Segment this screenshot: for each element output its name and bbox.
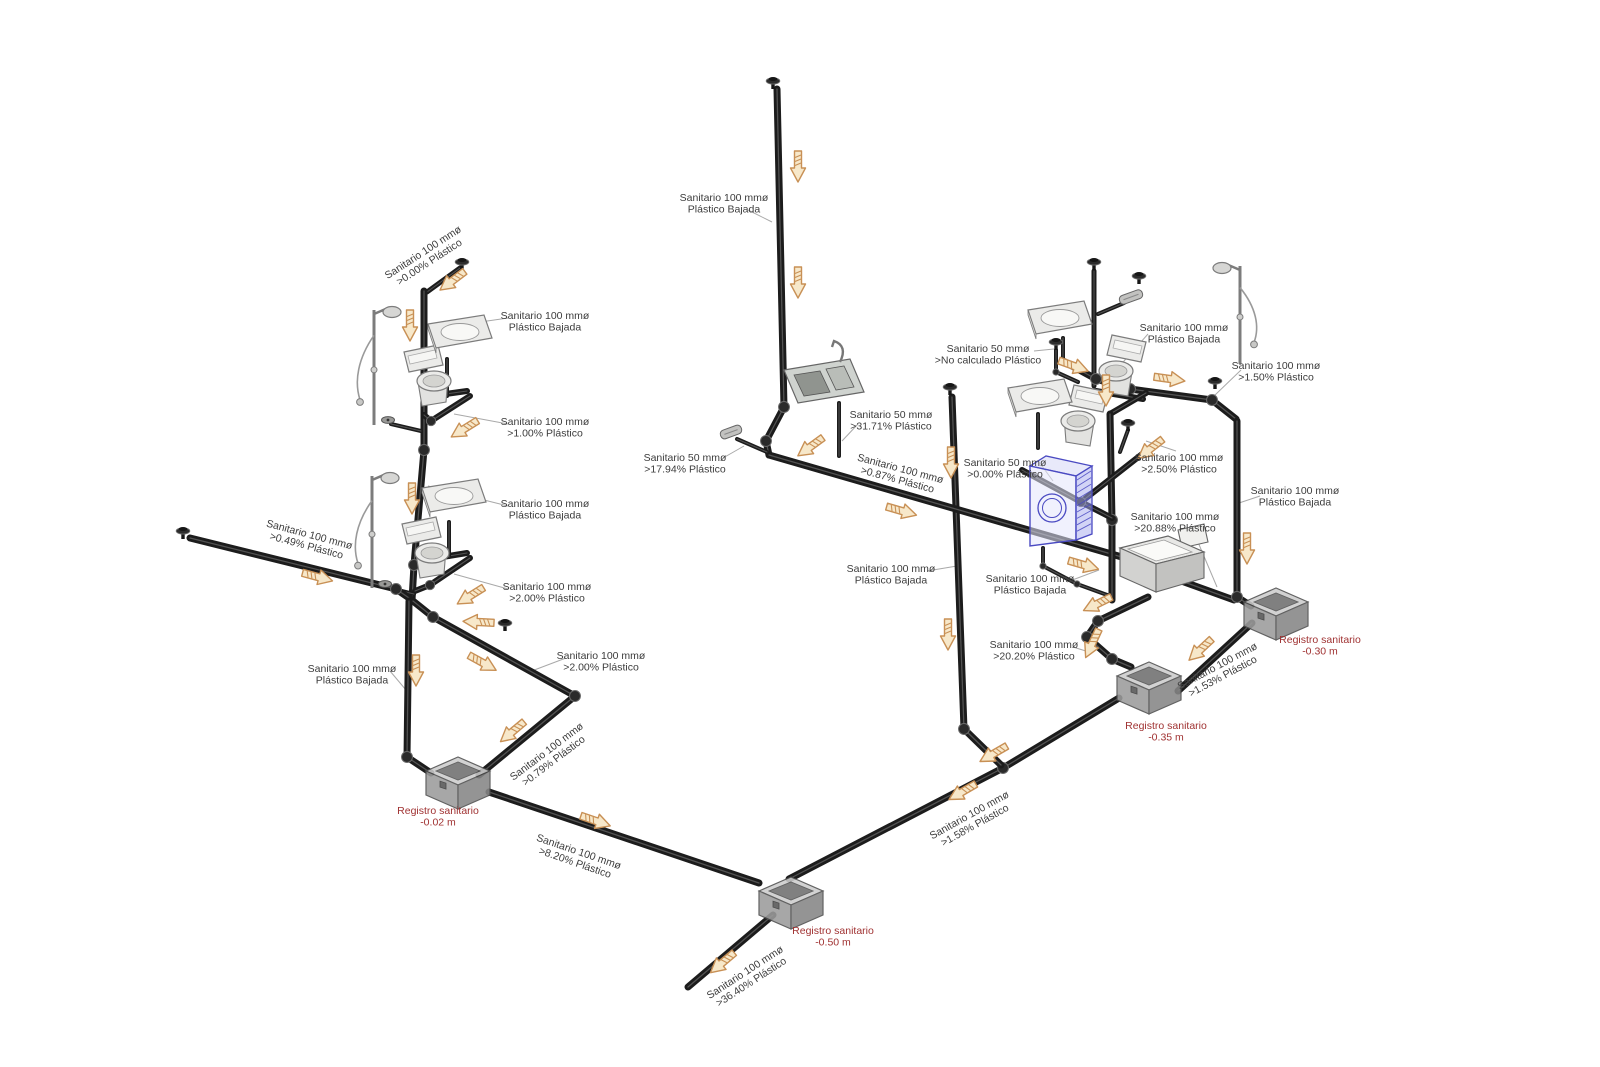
pipe-fitting (761, 436, 772, 447)
pipe-main-run-c (789, 698, 1119, 879)
pipe-showerr-stub (1098, 303, 1124, 314)
shower-handset (355, 562, 362, 569)
pipe-label-slope-17-94: Sanitario 50 mmø>17.94% Plástico (644, 452, 727, 476)
vent-cap-top (458, 258, 467, 262)
registro-050-label: Registro sanitario-0.50 m (792, 925, 874, 949)
small-floor-drain (382, 417, 395, 424)
vent-cap (1121, 419, 1135, 431)
drain-center (387, 419, 390, 422)
kitchen-sink-fixture (784, 341, 864, 403)
flow-arrow-icon (453, 581, 487, 610)
vent-cap (1132, 272, 1146, 284)
sink-bowl (435, 488, 473, 505)
pipe-label-bajada-mid: Sanitario 100 mmøPlástico Bajada (847, 563, 936, 587)
pipe-fitting (402, 752, 413, 763)
sink-bowl (1041, 310, 1079, 327)
leader-lines-layer (390, 210, 1260, 690)
flow-arrow-icon (791, 267, 806, 298)
pipe-label-bajada-bathr: Sanitario 100 mmøPlástico Bajada (1140, 322, 1229, 346)
toilet-fixture (404, 345, 451, 406)
pipe-highlight (1120, 430, 1128, 452)
registro-030-label: Registro sanitario-0.30 m (1279, 634, 1361, 658)
flow-arrow-icon (403, 310, 418, 341)
flow-arrow-body (791, 151, 806, 182)
pipe-label-slope-2-00-b: Sanitario 100 mmø>2.00% Plástico (557, 650, 646, 674)
shower-fixture (1213, 263, 1257, 365)
flow-arrow-body (793, 432, 827, 462)
flow-arrow-body (885, 499, 919, 522)
floor-drain-plate (719, 424, 743, 440)
pipe-fitting (959, 724, 970, 735)
vent-cap-top (1090, 258, 1099, 262)
shower-fixture (357, 307, 401, 426)
pipe-label-bajada-right: Sanitario 100 mmøPlástico Bajada (1251, 485, 1340, 509)
pipe-highlight (489, 792, 759, 883)
shower-handset (1251, 341, 1258, 348)
vent-cap-top (1124, 419, 1133, 423)
pipe-highlight (1098, 303, 1124, 314)
pipe-label-slope-8-20: Sanitario 100 mmø>8.20% Plástico (531, 832, 623, 883)
flow-arrow-icon (447, 414, 481, 443)
sink-bowl (1021, 388, 1059, 405)
registro-030-box (1244, 588, 1308, 640)
pipe-label-slope-1-00: Sanitario 100 mmø>1.00% Plástico (501, 416, 590, 440)
flow-arrow-body (463, 614, 495, 631)
pipe-vent-2-50-stub (1120, 430, 1128, 452)
pipe-label-no-calculado: Sanitario 50 mmø>No calculado Plástico (935, 343, 1042, 367)
plumbing-diagram-canvas: Sanitario 100 mmøPlástico BajadaSanitari… (0, 0, 1600, 1067)
sanitary-isometric-diagram: Sanitario 100 mmøPlástico BajadaSanitari… (0, 0, 1600, 1067)
flow-arrow-icon (791, 151, 806, 182)
pipe-fitting (779, 402, 790, 413)
pipe-label-bajada-left: Sanitario 100 mmøPlástico Bajada (308, 663, 397, 687)
flow-arrow-icon (793, 432, 827, 462)
flow-arrow-icon (1240, 533, 1255, 564)
shower-valve (371, 367, 377, 373)
flow-arrow-body (1240, 533, 1255, 564)
flow-arrow-icon (496, 716, 529, 747)
pipe-fitting (1093, 616, 1104, 627)
flow-arrow-body (453, 581, 487, 610)
pipe-fitting (419, 445, 430, 456)
pipe-label-slope-20-20: Sanitario 100 mmø>20.20% Plástico (990, 639, 1079, 663)
vent-cap (1208, 377, 1222, 389)
flow-arrow-icon (885, 499, 919, 522)
vent-cap-top (501, 619, 510, 623)
pipes-layer (190, 89, 1252, 987)
flow-arrow-icon (941, 619, 956, 650)
vent-cap (1049, 338, 1063, 350)
registro-035-box (1117, 662, 1181, 714)
vent-cap-top (1135, 272, 1144, 276)
flow-arrow-body (447, 414, 481, 443)
pipe-shower1-stub (391, 424, 421, 431)
vent-cap-top (769, 77, 778, 81)
pipe-bajada-1112 (1107, 414, 1118, 600)
pipe-label-slope-20-88: Sanitario 100 mmø>20.88% Plástico (1131, 511, 1220, 535)
pipe-fitting (1207, 395, 1218, 406)
washer-side (1076, 466, 1092, 540)
vent-cap-top (1052, 338, 1061, 342)
vent-cap-top (179, 527, 188, 531)
pipe-fitting (1107, 654, 1118, 665)
shower-head-icon (1213, 263, 1231, 274)
pipe-stack-right (1232, 421, 1251, 606)
pipe-fitting (391, 584, 402, 595)
pipe-body (1237, 421, 1251, 606)
pipe-label-slope-0-79: Sanitario 100 mmø>0.79% Plástico (508, 720, 593, 793)
pipe-fitting (1232, 592, 1243, 603)
drain-center (384, 583, 387, 586)
flow-arrow-icon (463, 614, 495, 631)
vent-cap (498, 619, 512, 631)
toilet-bowl-rim (421, 547, 443, 559)
pipe-label-slope-36-40: Sanitario 100 mmø>36.40% Plástico (705, 943, 793, 1011)
wall-sink-fixture (422, 479, 486, 517)
pipe-label-bajada-bath2: Sanitario 100 mmøPlástico Bajada (501, 498, 590, 522)
pipe-fitting (425, 580, 434, 589)
flow-arrow-icon (1153, 369, 1186, 388)
pipe-highlight (391, 424, 421, 431)
pipe-fitting (1074, 581, 1080, 587)
shower-head-icon (381, 473, 399, 484)
shower-handset (357, 399, 364, 406)
pipe-fitting (426, 416, 435, 425)
vent-cap-top (1211, 377, 1220, 381)
shower-head-icon (383, 307, 401, 318)
label-leader-line (1239, 496, 1260, 503)
vent-cap-top (946, 383, 955, 387)
pipe-label-bajada-bath1: Sanitario 100 mmøPlástico Bajada (501, 310, 590, 334)
flow-arrow-body (941, 619, 956, 650)
registro-002-label: Registro sanitario-0.02 m (397, 805, 479, 829)
label-leader-line (1034, 349, 1054, 351)
wall-sink-fixture (1028, 301, 1092, 339)
pipe-label-bajada-top: Sanitario 100 mmøPlástico Bajada (680, 192, 769, 216)
flow-arrow-body (791, 267, 806, 298)
toilet-bowl-rim (1067, 415, 1089, 427)
vent-cap (943, 383, 957, 395)
registro-035-label: Registro sanitario-0.35 m (1125, 720, 1207, 744)
flow-arrow-body (403, 310, 418, 341)
shower-valve (1237, 314, 1243, 320)
pipe-label-bajada-laundry: Sanitario 100 mmøPlástico Bajada (986, 573, 1075, 597)
pipe-stack-top (761, 89, 790, 455)
toilet-bowl-rim (423, 375, 445, 387)
pipe-label-slope-2-50: Sanitario 100 mmø>2.50% Plástico (1135, 452, 1224, 476)
pipe-fitting (428, 612, 439, 623)
pipe-fitting (1053, 369, 1059, 375)
flow-arrow-body (496, 716, 529, 747)
pipe-fitting (1040, 563, 1046, 569)
wall-sink-fixture (428, 315, 492, 353)
flow-arrow-body (1153, 369, 1186, 388)
pipe-fitting (570, 691, 581, 702)
pipe-run-8-20 (489, 792, 759, 883)
toilet-fixture (402, 517, 449, 578)
pipe-body (407, 601, 431, 773)
vent-cap (1087, 258, 1101, 270)
sink-bowl (441, 324, 479, 341)
shower-valve (369, 531, 375, 537)
shower-fixture (355, 473, 399, 589)
kitchen-faucet (832, 341, 843, 362)
pipe-bajada-to-002 (402, 601, 431, 773)
registro-002-box (426, 757, 490, 809)
pipe-label-slope-2-00-a: Sanitario 100 mmø>2.00% Plástico (503, 581, 592, 605)
floor-drain-plate (1118, 289, 1144, 306)
wall-sink-fixture (1008, 379, 1072, 417)
pipe-label-slope-0-00-wm: Sanitario 50 mmø>0.00% Plástico (964, 457, 1047, 481)
small-floor-drain (379, 581, 392, 588)
pipe-label-slope-1-50: Sanitario 100 mmø>1.50% Plástico (1232, 360, 1321, 384)
pipe-body (789, 698, 1119, 879)
pipe-label-slope-31-71: Sanitario 50 mmø>31.71% Plástico (850, 409, 933, 433)
